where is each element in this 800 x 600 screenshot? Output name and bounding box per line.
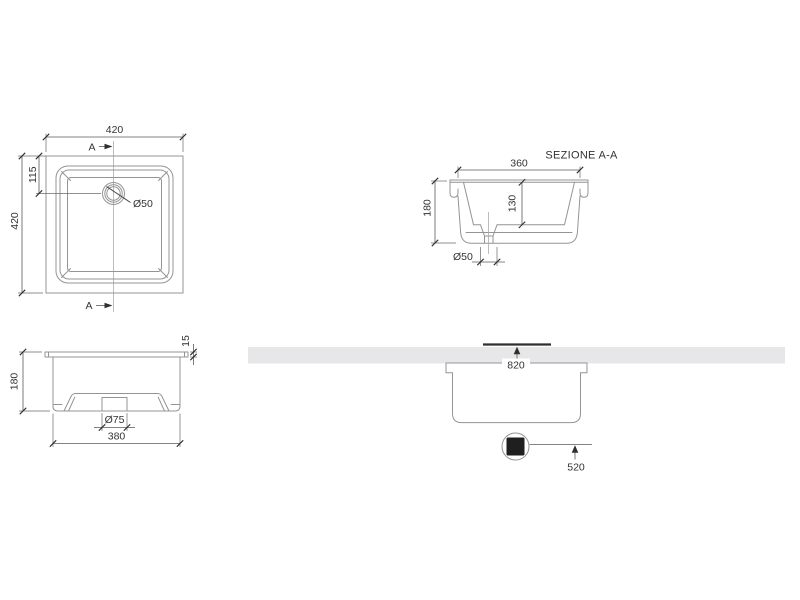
section-arrow-icon xyxy=(105,303,113,309)
cutout-width-label: 820 xyxy=(507,360,525,372)
front-width-label: 380 xyxy=(108,431,126,443)
section-drain-diameter-label: Ø50 xyxy=(453,251,473,263)
up-arrow-icon xyxy=(572,445,579,452)
plan-drain-diameter-label: Ø50 xyxy=(133,198,153,210)
section-width-label: 360 xyxy=(510,158,528,170)
corner-chamfer-line xyxy=(159,269,168,278)
section-marker-top-label: A xyxy=(88,142,95,154)
drain-distance-label: 520 xyxy=(567,462,585,474)
section-view: SEZIONE A-A 360 180 130 xyxy=(422,150,619,267)
plan-drain-offset-label: 115 xyxy=(27,166,39,183)
front-height-label: 180 xyxy=(9,373,21,391)
plan-view: Ø50 420 420 115 A A xyxy=(9,124,186,312)
section-arrow-icon xyxy=(105,144,113,150)
corner-chamfer-line xyxy=(62,269,71,278)
plan-basin-rim-inner xyxy=(60,170,169,279)
section-height-label: 180 xyxy=(422,199,434,217)
undermount-sink-outline xyxy=(446,363,587,423)
section-outer-body xyxy=(458,196,580,243)
installation-view: 820 520 xyxy=(248,345,785,474)
front-rim xyxy=(45,352,188,357)
plan-width-label: 420 xyxy=(106,124,124,136)
technical-drawing-page: Ø50 420 420 115 A A SEZIONE A-A xyxy=(0,0,800,600)
front-rim-thickness-label: 15 xyxy=(180,335,192,347)
section-marker-bottom-label: A xyxy=(85,300,92,312)
plan-basin-rim-outer xyxy=(56,166,173,283)
front-drain-boss xyxy=(102,398,127,412)
section-view-title: SEZIONE A-A xyxy=(545,150,618,162)
front-drain-boss-label: Ø75 xyxy=(105,414,125,426)
corner-chamfer-line xyxy=(159,172,168,181)
drawing-canvas: Ø50 420 420 115 A A SEZIONE A-A xyxy=(0,0,800,600)
front-view: 15 180 Ø75 380 xyxy=(9,335,198,447)
drain-symbol-square xyxy=(507,438,525,456)
corner-chamfer-line xyxy=(62,172,71,181)
front-bottom-recess xyxy=(64,394,169,412)
section-depth-label: 130 xyxy=(507,195,519,213)
plan-height-label: 420 xyxy=(9,212,21,230)
